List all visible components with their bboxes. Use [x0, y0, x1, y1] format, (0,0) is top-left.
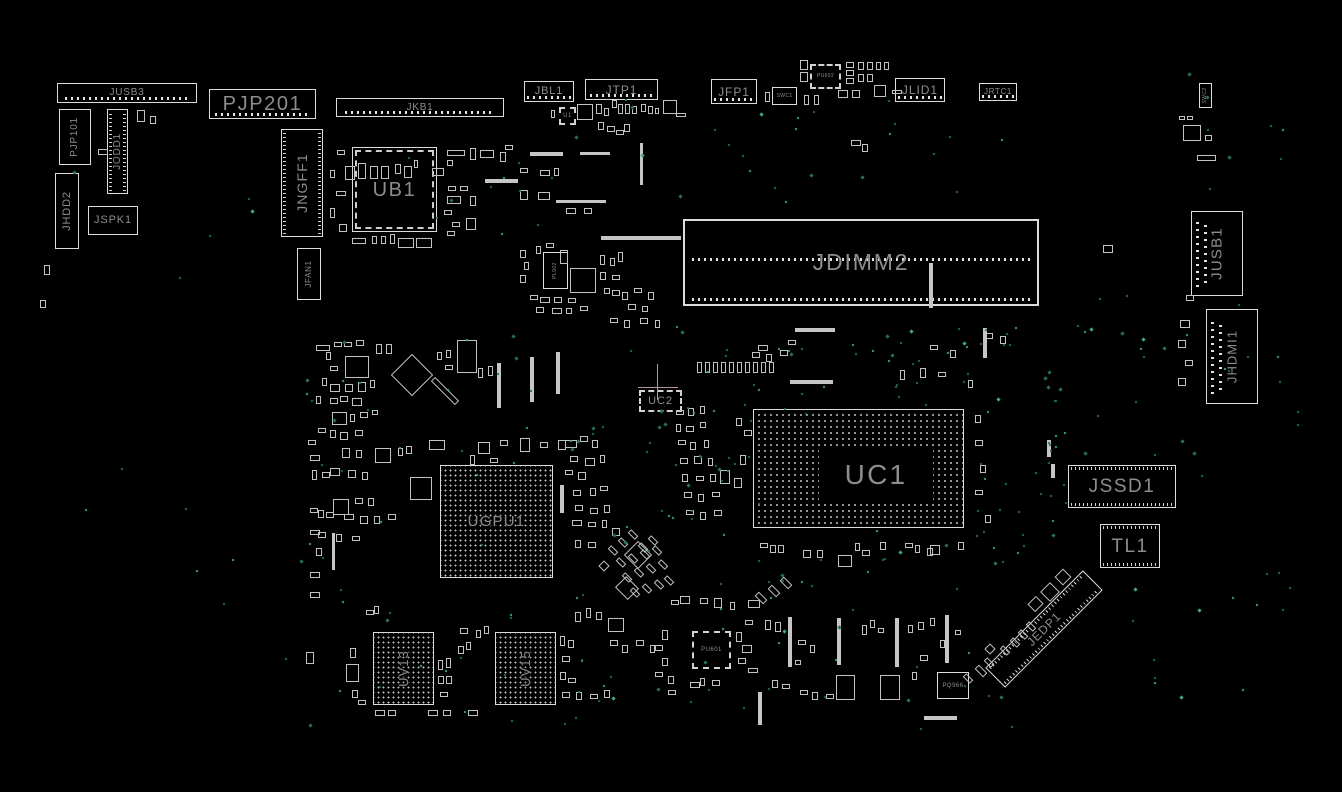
diagonal-part[interactable] [598, 560, 609, 571]
passive-part[interactable] [655, 320, 660, 328]
passive-part[interactable] [448, 186, 456, 191]
passive-part[interactable] [968, 380, 973, 388]
passive-part[interactable] [600, 455, 605, 463]
passive-part[interactable] [1205, 135, 1212, 141]
passive-part[interactable] [625, 104, 630, 114]
passive-part[interactable] [500, 152, 506, 162]
passive-part[interactable] [572, 520, 582, 526]
passive-part[interactable] [470, 455, 475, 465]
passive-part[interactable] [760, 543, 768, 548]
passive-part[interactable] [800, 60, 808, 70]
passive-part[interactable] [738, 658, 746, 664]
passive-part[interactable] [575, 612, 581, 622]
passive-part[interactable] [600, 272, 606, 280]
passive-part[interactable] [470, 196, 476, 206]
passive-part[interactable] [590, 488, 596, 496]
passive-part[interactable] [398, 238, 414, 248]
uv15-chip[interactable]: UV15 [495, 632, 556, 705]
passive-part[interactable] [596, 104, 602, 114]
passive-part[interactable] [958, 542, 964, 550]
passive-part[interactable] [570, 456, 578, 462]
passive-part[interactable] [466, 218, 476, 230]
passive-part[interactable] [826, 694, 834, 699]
passive-part[interactable] [484, 626, 489, 634]
passive-part[interactable] [814, 95, 819, 105]
passive-part[interactable] [330, 398, 338, 404]
passive-part[interactable] [568, 640, 574, 648]
passive-part[interactable] [1178, 378, 1186, 386]
passive-part[interactable] [577, 104, 593, 120]
passive-part[interactable] [480, 150, 494, 158]
passive-part[interactable] [429, 440, 445, 450]
passive-part[interactable] [744, 430, 752, 436]
passive-part[interactable] [490, 458, 498, 463]
passive-part[interactable] [554, 168, 559, 176]
jfp1-connector[interactable]: JFP1 [711, 79, 757, 104]
diagonal-part[interactable] [654, 579, 665, 590]
passive-part[interactable] [804, 95, 809, 105]
passive-part[interactable] [1178, 340, 1186, 348]
passive-part[interactable] [920, 655, 928, 661]
passive-part[interactable] [678, 440, 686, 445]
passive-part[interactable] [437, 352, 442, 360]
passive-part[interactable] [892, 90, 902, 94]
passive-part[interactable] [600, 255, 605, 265]
passive-part[interactable] [855, 543, 860, 551]
passive-part[interactable] [862, 625, 867, 635]
passive-part[interactable] [604, 288, 610, 294]
passive-part[interactable] [318, 510, 324, 518]
passive-part[interactable] [578, 472, 586, 480]
passive-part[interactable] [520, 190, 528, 200]
passive-part[interactable] [505, 145, 513, 150]
passive-part[interactable] [682, 474, 688, 482]
passive-part[interactable] [312, 470, 317, 480]
passive-part[interactable] [1180, 320, 1190, 328]
passive-part[interactable] [452, 222, 460, 227]
passive-part[interactable] [554, 297, 562, 303]
passive-part[interactable] [488, 366, 493, 376]
passive-part[interactable] [938, 372, 946, 377]
passive-part[interactable] [758, 345, 768, 351]
passive-part[interactable] [575, 540, 581, 548]
passive-part[interactable] [552, 308, 562, 314]
passive-part[interactable] [604, 690, 610, 698]
passive-part[interactable] [330, 430, 336, 438]
passive-part[interactable] [340, 432, 348, 440]
passive-part[interactable] [588, 542, 596, 548]
passive-part[interactable] [414, 160, 418, 168]
passive-part[interactable] [852, 90, 860, 98]
passive-part[interactable] [810, 645, 815, 653]
passive-part[interactable] [846, 62, 854, 68]
passive-part[interactable] [570, 268, 596, 293]
passive-part[interactable] [316, 396, 321, 404]
passive-part[interactable] [375, 710, 385, 716]
passive-part[interactable] [388, 710, 396, 716]
passive-part[interactable] [736, 632, 742, 642]
passive-part[interactable] [466, 642, 471, 650]
jusb3-connector[interactable]: JUSB3 [57, 83, 197, 103]
passive-part[interactable] [339, 224, 347, 232]
passive-part[interactable] [858, 62, 864, 70]
passive-part[interactable] [520, 275, 526, 283]
jngff1-connector[interactable]: JNGFF1 [281, 129, 323, 237]
passive-part[interactable] [930, 618, 935, 626]
passive-part[interactable] [330, 366, 338, 371]
diagonal-part[interactable] [768, 585, 781, 598]
passive-part[interactable] [362, 472, 368, 480]
passive-part[interactable] [562, 692, 570, 698]
passive-part[interactable] [540, 297, 550, 303]
passive-part[interactable] [573, 490, 581, 496]
passive-part[interactable] [905, 543, 913, 548]
passive-part[interactable] [618, 252, 623, 262]
uc1-chip[interactable]: UC1 [753, 409, 964, 528]
passive-part[interactable] [612, 100, 617, 108]
passive-part[interactable] [955, 630, 961, 635]
passive-part[interactable] [330, 170, 335, 178]
passive-part[interactable] [310, 572, 320, 578]
passive-part[interactable] [588, 522, 596, 527]
passive-part[interactable] [610, 640, 618, 646]
diagonal-part[interactable] [616, 557, 627, 568]
passive-part[interactable] [536, 246, 541, 254]
passive-part[interactable] [1183, 125, 1201, 141]
passive-part[interactable] [748, 668, 758, 673]
passive-part[interactable] [580, 306, 588, 311]
passive-part[interactable] [310, 455, 320, 461]
passive-part[interactable] [884, 62, 889, 70]
passive-part[interactable] [1197, 155, 1216, 161]
passive-part[interactable] [536, 307, 544, 313]
passive-part[interactable] [580, 436, 588, 442]
passive-part[interactable] [432, 168, 444, 176]
passive-part[interactable] [798, 640, 806, 645]
passive-part[interactable] [404, 166, 412, 178]
passive-part[interactable] [360, 412, 368, 418]
passive-part[interactable] [622, 292, 628, 300]
passive-part[interactable] [137, 110, 145, 122]
passive-part[interactable] [610, 318, 618, 323]
passive-part[interactable] [330, 468, 340, 476]
diagonal-part[interactable] [984, 643, 995, 654]
passive-part[interactable] [551, 110, 555, 118]
passive-part[interactable] [336, 191, 346, 196]
passive-part[interactable] [322, 378, 327, 386]
passive-part[interactable] [585, 458, 595, 466]
passive-part[interactable] [862, 550, 870, 556]
passive-part[interactable] [817, 550, 823, 558]
passive-part[interactable] [714, 510, 722, 516]
passive-part[interactable] [345, 166, 355, 180]
passive-part[interactable] [372, 410, 378, 415]
passive-part[interactable] [915, 545, 920, 553]
passive-part[interactable] [446, 658, 451, 668]
passive-part[interactable] [355, 430, 363, 436]
passive-part[interactable] [440, 692, 448, 697]
passive-part[interactable] [345, 384, 353, 392]
passive-part[interactable] [640, 318, 648, 324]
passive-part[interactable] [880, 542, 886, 550]
passive-part[interactable] [690, 682, 700, 688]
passive-part[interactable] [874, 85, 886, 97]
passive-part[interactable] [460, 628, 468, 634]
passive-part[interactable] [596, 612, 602, 620]
passive-part[interactable] [598, 122, 604, 130]
passive-part[interactable] [360, 516, 368, 524]
passive-part[interactable] [1185, 360, 1193, 366]
u1-chip[interactable]: U1 [559, 107, 576, 125]
passive-part[interactable] [710, 474, 716, 482]
passive-part[interactable] [624, 320, 630, 328]
passive-part[interactable] [655, 108, 659, 114]
passive-part[interactable] [600, 486, 608, 491]
passive-part[interactable] [803, 550, 811, 558]
passive-part[interactable] [447, 231, 455, 236]
passive-part[interactable] [765, 620, 771, 630]
jkb1-connector[interactable]: JKB1 [336, 98, 504, 117]
passive-part[interactable] [395, 164, 401, 174]
passive-part[interactable] [342, 448, 350, 458]
passive-part[interactable] [838, 90, 848, 98]
diagonal-part[interactable] [391, 354, 433, 396]
passive-part[interactable] [858, 74, 864, 82]
ugpu1-chip[interactable]: UGPU1 [440, 465, 553, 578]
passive-part[interactable] [446, 350, 451, 358]
pjp201-connector[interactable]: PJP201 [209, 89, 316, 119]
diagonal-part[interactable] [628, 529, 639, 540]
passive-part[interactable] [980, 465, 986, 473]
passive-part[interactable] [520, 438, 530, 452]
passive-part[interactable] [476, 630, 481, 638]
diagonal-part[interactable] [646, 563, 657, 574]
passive-part[interactable] [775, 622, 781, 632]
passive-part[interactable] [686, 426, 694, 432]
passive-part[interactable] [445, 365, 453, 370]
passive-part[interactable] [150, 116, 156, 124]
passive-part[interactable] [460, 186, 468, 191]
passive-part[interactable] [846, 70, 854, 76]
passive-part[interactable] [920, 368, 926, 378]
passive-part[interactable] [406, 446, 412, 454]
passive-part[interactable] [352, 238, 366, 244]
passive-part[interactable] [912, 672, 917, 680]
passive-part[interactable] [690, 442, 696, 450]
passive-part[interactable] [336, 534, 342, 542]
passive-part[interactable] [520, 168, 528, 173]
passive-part[interactable] [836, 675, 855, 700]
passive-part[interactable] [500, 440, 508, 446]
passive-part[interactable] [795, 660, 801, 665]
passive-part[interactable] [390, 234, 395, 244]
passive-part[interactable] [700, 512, 706, 520]
passive-part[interactable] [524, 262, 529, 270]
jrtc1-connector[interactable]: JRTC1 [979, 83, 1017, 101]
passive-part[interactable] [700, 422, 706, 428]
passive-part[interactable] [752, 352, 760, 358]
passive-part[interactable] [468, 710, 478, 716]
passive-part[interactable] [740, 455, 746, 465]
passive-part[interactable] [372, 236, 377, 244]
passive-part[interactable] [352, 690, 358, 698]
passive-part[interactable] [663, 100, 677, 114]
passive-part[interactable] [604, 505, 610, 513]
tl1-chip[interactable]: TL1 [1100, 524, 1160, 568]
diagonal-part[interactable] [608, 545, 619, 556]
passive-part[interactable] [398, 448, 403, 456]
diagonal-part[interactable] [431, 377, 459, 405]
passive-part[interactable] [700, 598, 708, 604]
pu602-chip[interactable]: PU602 [810, 64, 841, 89]
passive-part[interactable] [356, 340, 364, 346]
passive-part[interactable] [655, 672, 663, 677]
passive-part[interactable] [975, 415, 981, 423]
passive-part[interactable] [975, 440, 983, 446]
jspk1-connector[interactable]: JSPK1 [88, 206, 138, 235]
passive-part[interactable] [671, 600, 679, 605]
passive-part[interactable] [867, 62, 873, 70]
passive-part[interactable] [337, 150, 345, 155]
passive-part[interactable] [650, 645, 655, 653]
passive-part[interactable] [662, 658, 668, 666]
passive-part[interactable] [745, 620, 753, 625]
passive-part[interactable] [566, 308, 572, 314]
passive-part[interactable] [641, 104, 646, 112]
passive-part[interactable] [662, 630, 668, 640]
passive-part[interactable] [648, 106, 653, 114]
passive-part[interactable] [308, 440, 316, 445]
passive-part[interactable] [648, 292, 654, 300]
jtp1-connector[interactable]: JTP1 [585, 79, 658, 100]
passive-part[interactable] [340, 396, 348, 402]
passive-part[interactable] [766, 354, 772, 362]
passive-part[interactable] [636, 640, 644, 646]
passive-part[interactable] [708, 458, 713, 466]
passive-part[interactable] [975, 490, 983, 495]
jlid1-connector[interactable]: JLID1 [895, 78, 945, 102]
jhdmi1-connector[interactable]: JHDMI1 [1206, 309, 1258, 404]
passive-part[interactable] [457, 340, 477, 373]
passive-part[interactable] [568, 298, 576, 303]
passive-part[interactable] [590, 508, 598, 514]
passive-part[interactable] [608, 618, 624, 632]
passive-part[interactable] [736, 418, 742, 426]
passive-part[interactable] [607, 126, 615, 132]
diagonal-part[interactable] [634, 567, 645, 578]
passive-part[interactable] [333, 499, 349, 515]
passive-part[interactable] [376, 344, 382, 354]
passive-part[interactable] [730, 602, 735, 610]
pu601-chip[interactable]: PU601 [692, 631, 731, 669]
passive-part[interactable] [410, 477, 432, 500]
passive-part[interactable] [447, 150, 465, 156]
passive-part[interactable] [918, 622, 924, 630]
passive-part[interactable] [330, 208, 335, 218]
passive-part[interactable] [782, 684, 790, 689]
passive-part[interactable] [870, 620, 875, 628]
passive-part[interactable] [778, 545, 784, 553]
passive-part[interactable] [880, 675, 900, 700]
passive-part[interactable] [930, 345, 938, 350]
passive-part[interactable] [698, 494, 704, 502]
passive-part[interactable] [812, 692, 818, 700]
passive-part[interactable] [655, 645, 663, 651]
passive-part[interactable] [446, 676, 452, 684]
passive-part[interactable] [322, 472, 330, 478]
passive-part[interactable] [478, 368, 483, 378]
passive-part[interactable] [356, 450, 362, 458]
passive-part[interactable] [704, 440, 709, 448]
passive-part[interactable] [765, 92, 770, 102]
passive-part[interactable] [352, 536, 360, 541]
passive-part[interactable] [684, 492, 692, 498]
passive-part[interactable] [566, 208, 576, 214]
passive-part[interactable] [326, 352, 331, 360]
passive-part[interactable] [352, 398, 362, 406]
passive-part[interactable] [370, 380, 375, 388]
passive-part[interactable] [584, 208, 592, 214]
passive-part[interactable] [316, 345, 330, 351]
passive-part[interactable] [345, 356, 369, 378]
passive-part[interactable] [530, 295, 538, 300]
passive-part[interactable] [562, 656, 570, 662]
passive-part[interactable] [616, 130, 624, 135]
passive-part[interactable] [565, 470, 573, 475]
passive-part[interactable] [375, 448, 391, 463]
passive-part[interactable] [867, 74, 873, 82]
passive-part[interactable] [438, 660, 443, 670]
passive-part[interactable] [428, 710, 438, 716]
passive-part[interactable] [1103, 245, 1113, 253]
passive-part[interactable] [712, 492, 720, 497]
passive-part[interactable] [1186, 295, 1194, 301]
passive-part[interactable] [1187, 116, 1193, 120]
passive-part[interactable] [374, 516, 380, 524]
passive-part[interactable] [447, 160, 453, 166]
jodd1-connector[interactable]: JODD1 [107, 109, 128, 194]
diagonal-part[interactable] [664, 575, 675, 586]
passive-part[interactable] [876, 62, 881, 70]
passive-part[interactable] [388, 514, 396, 520]
passive-part[interactable] [540, 442, 548, 448]
passive-part[interactable] [610, 258, 615, 266]
passive-part[interactable] [318, 532, 326, 538]
passive-part[interactable] [668, 676, 674, 684]
uv13-chip[interactable]: UV13 [373, 632, 434, 705]
jssd1-connector[interactable]: JSSD1 [1068, 465, 1176, 508]
passive-part[interactable] [318, 428, 326, 433]
passive-part[interactable] [602, 520, 607, 528]
passive-part[interactable] [838, 555, 852, 567]
jhdd2-connector[interactable]: JHDD2 [55, 173, 79, 249]
passive-part[interactable] [696, 476, 704, 481]
passive-part[interactable] [590, 694, 598, 699]
passive-part[interactable] [800, 690, 808, 695]
passive-part[interactable] [586, 608, 591, 618]
passive-part[interactable] [348, 470, 356, 478]
passive-part[interactable] [772, 680, 778, 688]
passive-part[interactable] [592, 440, 598, 448]
passive-part[interactable] [538, 192, 550, 200]
diagonal-part[interactable] [642, 583, 653, 594]
passive-part[interactable] [908, 625, 913, 633]
passive-part[interactable] [568, 678, 576, 683]
passive-part[interactable] [624, 124, 630, 132]
passive-part[interactable] [330, 384, 340, 392]
passive-part[interactable] [900, 370, 905, 380]
passive-part[interactable] [366, 610, 374, 615]
